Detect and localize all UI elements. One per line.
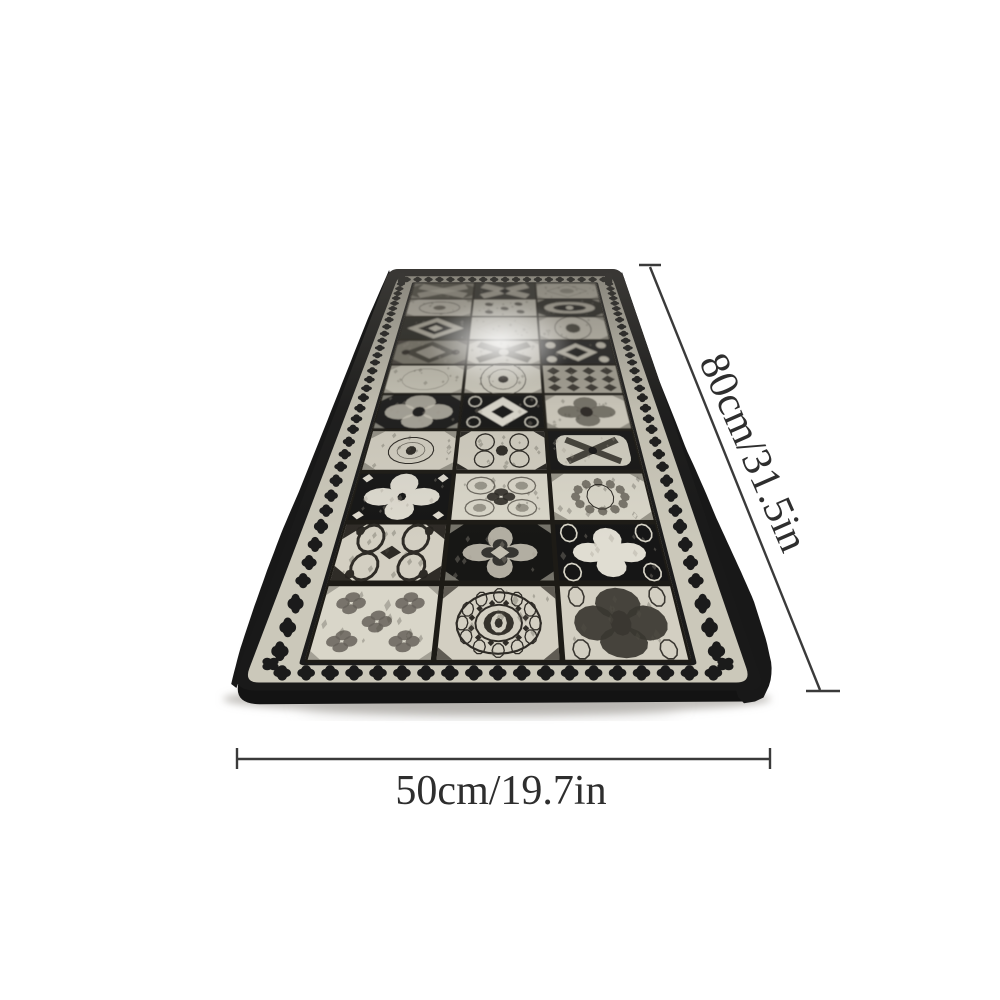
svg-text:50cm/19.7in: 50cm/19.7in xyxy=(395,768,606,814)
